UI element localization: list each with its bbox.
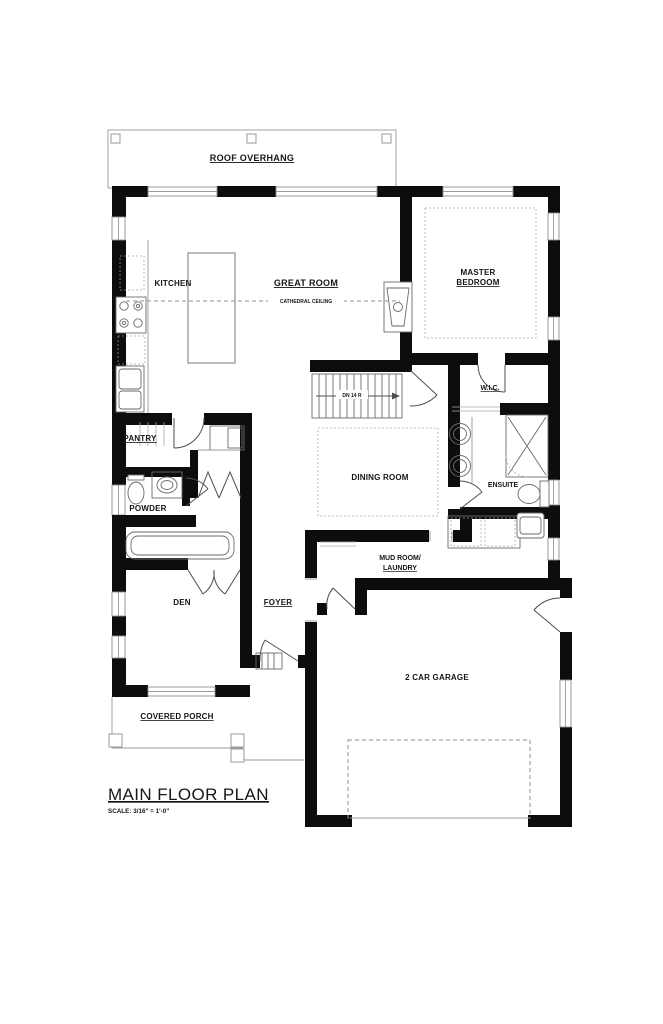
window — [112, 485, 125, 515]
great-room-label: GREAT ROOM — [274, 278, 338, 288]
window — [560, 680, 571, 727]
powder-label: POWDER — [129, 504, 166, 513]
foyer-label: FOYER — [264, 598, 293, 607]
porch-post — [231, 734, 244, 747]
window — [112, 217, 125, 240]
kitchen-sink — [116, 366, 144, 412]
window — [148, 687, 215, 696]
powder-toilet — [128, 475, 144, 504]
den-label: DEN — [173, 598, 191, 607]
master-bedroom-label-line2: BEDROOM — [456, 278, 499, 287]
window — [548, 317, 559, 340]
stair-note: DN 14 R — [342, 393, 362, 399]
covered-porch-label: COVERED PORCH — [140, 712, 213, 721]
plan-scale-note: SCALE: 3/16" = 1'-0" — [108, 808, 169, 815]
master-bedroom-label-line1: MASTER — [461, 268, 496, 277]
window — [443, 187, 513, 196]
window — [548, 480, 559, 505]
ensuite-label: ENSUITE — [488, 482, 519, 489]
window — [112, 592, 125, 616]
range — [116, 297, 146, 333]
garage-label: 2 CAR GARAGE — [405, 673, 469, 682]
porch-post — [231, 749, 244, 762]
mud-room-label-line1: MUD ROOM/ — [379, 555, 421, 562]
roof-overhang-label: ROOF OVERHANG — [210, 153, 294, 163]
floor-plan-sheet: ROOF OVERHANG — [0, 0, 663, 1024]
window — [548, 213, 559, 240]
sink-label: SINK — [526, 509, 535, 513]
laundry-sink: SINK — [517, 509, 544, 538]
floor-plan-drawing: ROOF OVERHANG — [0, 0, 663, 1024]
fireplace — [384, 282, 412, 332]
porch-post — [109, 734, 122, 747]
cathedral-ceiling-note: CATHEDRAL CEILING — [268, 295, 344, 305]
kitchen-label: KITCHEN — [155, 279, 192, 288]
svg-text:CATHEDRAL CEILING: CATHEDRAL CEILING — [280, 299, 332, 305]
window — [148, 187, 217, 196]
paper-background — [0, 0, 663, 1024]
wic-label: W.I.C. — [480, 385, 499, 392]
plan-title: MAIN FLOOR PLAN — [108, 785, 269, 804]
dining-room-label: DINING ROOM — [351, 473, 408, 482]
window — [548, 538, 559, 560]
mud-room-label-line2: LAUNDRY — [383, 565, 417, 572]
window — [112, 636, 125, 658]
pantry-label: PANTRY — [123, 434, 157, 443]
window — [276, 187, 377, 196]
